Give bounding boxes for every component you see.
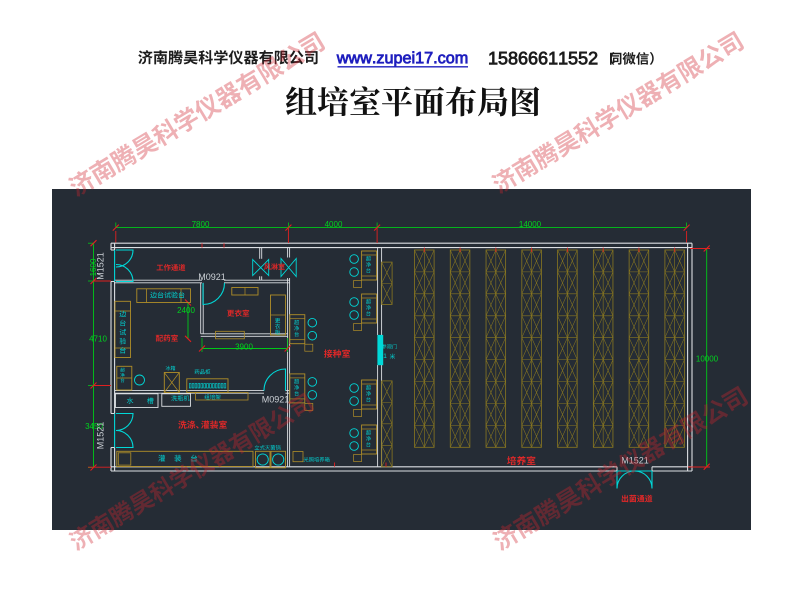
svg-text:14000: 14000 xyxy=(519,220,542,229)
svg-text:M1521: M1521 xyxy=(96,252,106,280)
svg-text:2400: 2400 xyxy=(177,306,195,315)
svg-text:M1521: M1521 xyxy=(95,422,105,450)
svg-text:4000: 4000 xyxy=(325,220,343,229)
svg-text:M0921: M0921 xyxy=(262,395,290,405)
svg-text:7800: 7800 xyxy=(192,220,210,229)
svg-text:M0921: M0921 xyxy=(198,272,226,282)
svg-text:10000: 10000 xyxy=(696,355,719,364)
svg-text:1: 1 xyxy=(383,353,387,360)
svg-text:3900: 3900 xyxy=(235,343,253,352)
svg-text:4710: 4710 xyxy=(89,335,107,344)
